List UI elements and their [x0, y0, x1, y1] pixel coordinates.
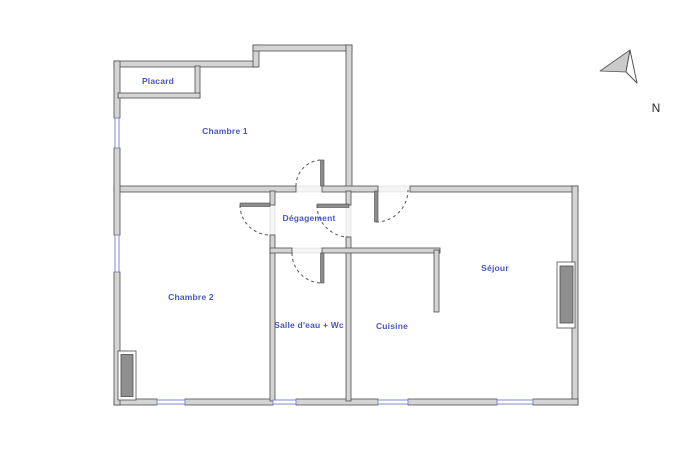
- floor-plan-canvas: Placard Chambre 1 Dégagement Chambre 2 S…: [0, 0, 700, 468]
- room-label-cuisine: Cuisine: [376, 321, 408, 331]
- window-salle-eau: [273, 400, 296, 404]
- door-arc-chambre2: [240, 205, 270, 235]
- window-cuisine: [378, 400, 408, 404]
- floor-plan: Placard Chambre 1 Dégagement Chambre 2 S…: [0, 0, 700, 468]
- threshold-salle-eau-door: [292, 248, 322, 253]
- wall-segment: [322, 248, 440, 253]
- wall-segment: [185, 399, 273, 405]
- door-leaf-chambre1: [321, 160, 325, 186]
- wall-segment: [346, 191, 351, 205]
- threshold-sejour-door: [346, 205, 351, 237]
- radiator-chambre2: [121, 355, 133, 397]
- wall-segment: [114, 61, 258, 67]
- north-label: N: [652, 101, 661, 115]
- wall-segment: [114, 148, 120, 235]
- room-label-sejour: Séjour: [481, 263, 509, 273]
- wall-segment: [270, 248, 292, 253]
- wall-segment: [296, 399, 378, 405]
- threshold-chambre2-door: [270, 205, 275, 235]
- window-chambre1: [115, 118, 119, 148]
- wall-segment: [434, 250, 439, 312]
- wall-segment-placard: [118, 93, 200, 98]
- door-leaf-sejour: [317, 204, 349, 208]
- wall-segment: [346, 237, 351, 401]
- wall-segment: [253, 45, 352, 51]
- radiator-sejour: [560, 266, 573, 323]
- door-leaf-chambre2: [240, 203, 270, 207]
- door-arc-salle-eau: [292, 253, 322, 283]
- room-label-chambre2: Chambre 2: [168, 292, 214, 302]
- wall-segment: [346, 45, 352, 192]
- door-arc-chambre1: [296, 160, 322, 186]
- window-chambre2-bottom: [157, 400, 185, 404]
- wall-segment: [114, 186, 296, 192]
- window-chambre2-left: [115, 235, 119, 272]
- door-leaf-entrance: [375, 191, 379, 222]
- wall-segment: [410, 186, 578, 192]
- room-labels: Placard Chambre 1 Dégagement Chambre 2 S…: [142, 76, 509, 331]
- room-label-chambre1: Chambre 1: [202, 126, 248, 136]
- room-label-placard: Placard: [142, 76, 174, 86]
- north-compass: N: [600, 50, 660, 115]
- threshold-entrance-door: [378, 186, 410, 192]
- door-arc-entrance: [376, 190, 408, 222]
- compass-arrow-shade: [600, 50, 630, 72]
- room-label-salle-eau: Salle d'eau + Wc: [274, 320, 344, 330]
- wall-segment: [533, 399, 578, 405]
- threshold-chambre1-door: [296, 186, 322, 192]
- wall-segment: [270, 191, 275, 205]
- window-sejour: [497, 400, 533, 404]
- door-leaf-salle-eau: [321, 253, 325, 283]
- room-label-degagement: Dégagement: [282, 213, 335, 223]
- wall-segment: [270, 235, 275, 401]
- wall-segment: [114, 61, 120, 118]
- interior-walls: [118, 66, 440, 401]
- wall-segment: [408, 399, 497, 405]
